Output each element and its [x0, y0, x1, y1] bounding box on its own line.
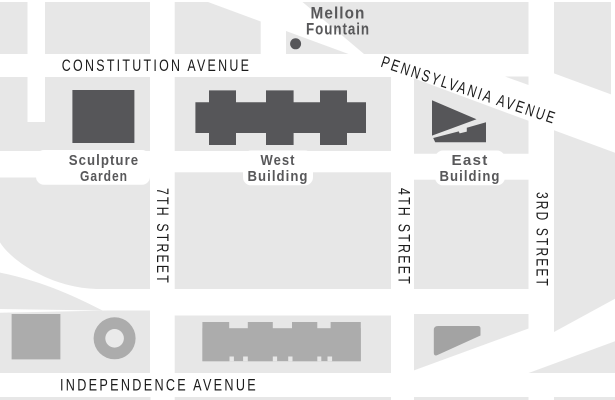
svg-text:Building: Building: [248, 168, 309, 185]
svg-text:Garden: Garden: [80, 168, 128, 185]
svg-text:INDEPENDENCE AVENUE: INDEPENDENCE AVENUE: [60, 377, 258, 395]
svg-text:4TH STREET: 4TH STREET: [395, 188, 413, 286]
svg-text:East: East: [452, 152, 489, 169]
svg-text:West: West: [261, 152, 296, 169]
svg-text:3RD STREET: 3RD STREET: [533, 192, 551, 288]
svg-text:CONSTITUTION AVENUE: CONSTITUTION AVENUE: [62, 57, 251, 75]
svg-text:Sculpture: Sculpture: [69, 152, 140, 169]
svg-text:Building: Building: [440, 168, 501, 185]
svg-text:7TH STREET: 7TH STREET: [153, 188, 171, 285]
svg-text:Fountain: Fountain: [306, 20, 370, 39]
